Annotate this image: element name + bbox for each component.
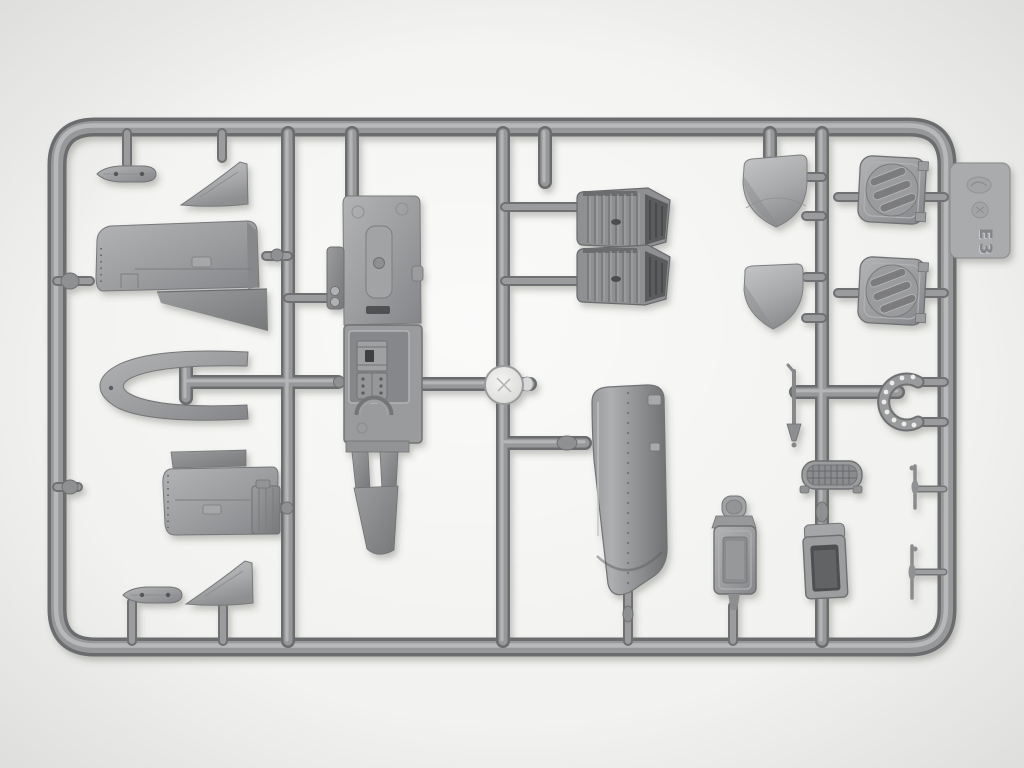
part-mesh-grille xyxy=(800,461,862,493)
sprue-photo: E3 E3 xyxy=(0,0,1024,768)
part-fuselage xyxy=(327,196,423,554)
part-curved-bracket xyxy=(882,375,918,428)
part-gate-disc xyxy=(485,366,533,404)
tab-logo-emboss xyxy=(967,177,991,193)
part-control-stick xyxy=(787,365,801,448)
part-wing-upper xyxy=(96,221,268,331)
part-radiator-2 xyxy=(577,245,670,305)
sprue-id-tab: E3 E3 xyxy=(950,163,1010,258)
part-triangle-1 xyxy=(181,162,248,206)
part-dome-small xyxy=(744,264,803,330)
part-radiator-1 xyxy=(577,188,670,248)
part-wing-lower xyxy=(163,450,280,535)
part-pilot-seat xyxy=(712,496,756,610)
part-dome-large xyxy=(743,155,807,228)
part-louver-panel-2 xyxy=(857,256,928,325)
wing-upper-aileron xyxy=(157,289,268,331)
fuselage-tail-wedge xyxy=(354,486,398,554)
part-open-box xyxy=(802,523,848,599)
part-triangle-2 xyxy=(186,561,253,605)
part-small-fairing-2 xyxy=(123,587,182,603)
part-louver-panel-1 xyxy=(857,155,928,224)
sprue-frame-and-parts: E3 E3 xyxy=(56,126,1010,648)
part-small-fairing-1 xyxy=(97,166,156,182)
tab-code: E3 xyxy=(975,228,995,257)
sprue-drawing: E3 E3 xyxy=(0,0,1024,768)
wing-lower-flap-strip xyxy=(171,450,246,468)
part-tank-shell xyxy=(592,385,667,595)
part-rod-1 xyxy=(910,466,919,509)
